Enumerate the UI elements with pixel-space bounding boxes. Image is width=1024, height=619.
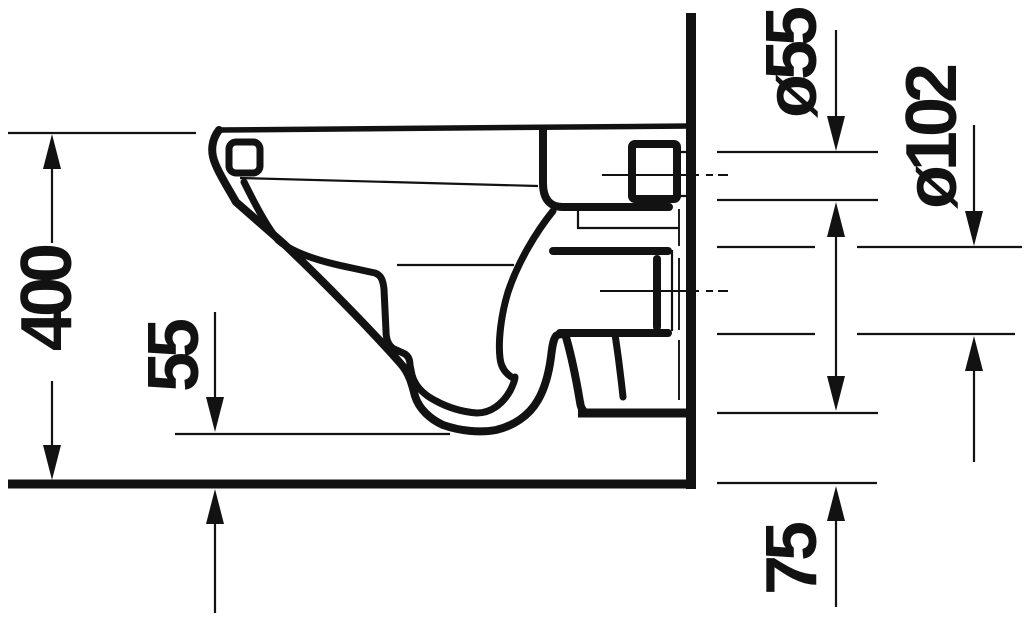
arrow-down-icon bbox=[827, 116, 845, 151]
arrow-down-icon bbox=[206, 397, 224, 432]
dimension-outlet-diameter: ø102 bbox=[717, 65, 1022, 462]
arrow-up-icon bbox=[827, 202, 845, 237]
dim-outlet-label: ø102 bbox=[892, 65, 972, 209]
dimension-75: 75 bbox=[717, 413, 878, 607]
outlet-elbow-inner bbox=[615, 334, 623, 397]
outlet-elbow-outer bbox=[566, 337, 586, 413]
dimension-inlet-diameter: ø55 bbox=[717, 7, 878, 411]
toilet-trap-back bbox=[499, 211, 553, 378]
arrow-down-icon bbox=[43, 445, 61, 480]
toilet-rim-section-box bbox=[229, 142, 260, 173]
arrow-down-icon bbox=[827, 376, 845, 411]
toilet-dimension-drawing: 400 55 ø55 ø102 75 bbox=[0, 0, 1024, 619]
drawing-canvas: 400 55 ø55 ø102 75 bbox=[0, 0, 1024, 619]
toilet-inner-bowl bbox=[244, 182, 515, 413]
toilet-seat-line bbox=[240, 178, 538, 186]
dim-55-label: 55 bbox=[134, 319, 214, 392]
arrow-up-icon bbox=[43, 134, 61, 169]
dimension-55: 55 bbox=[134, 312, 450, 613]
dim-400-label: 400 bbox=[7, 245, 87, 351]
toilet-top-rim bbox=[220, 126, 690, 130]
dim-inlet-label: ø55 bbox=[752, 7, 832, 118]
inlet-socket-box bbox=[632, 144, 677, 199]
arrow-up-icon bbox=[827, 486, 845, 521]
shelf-detail-line bbox=[578, 210, 679, 228]
dimension-400: 400 bbox=[7, 133, 196, 480]
arrow-up-icon bbox=[965, 336, 983, 371]
dim-75-label: 75 bbox=[752, 522, 832, 595]
arrow-down-icon bbox=[965, 211, 983, 246]
arrow-up-icon bbox=[206, 489, 224, 524]
